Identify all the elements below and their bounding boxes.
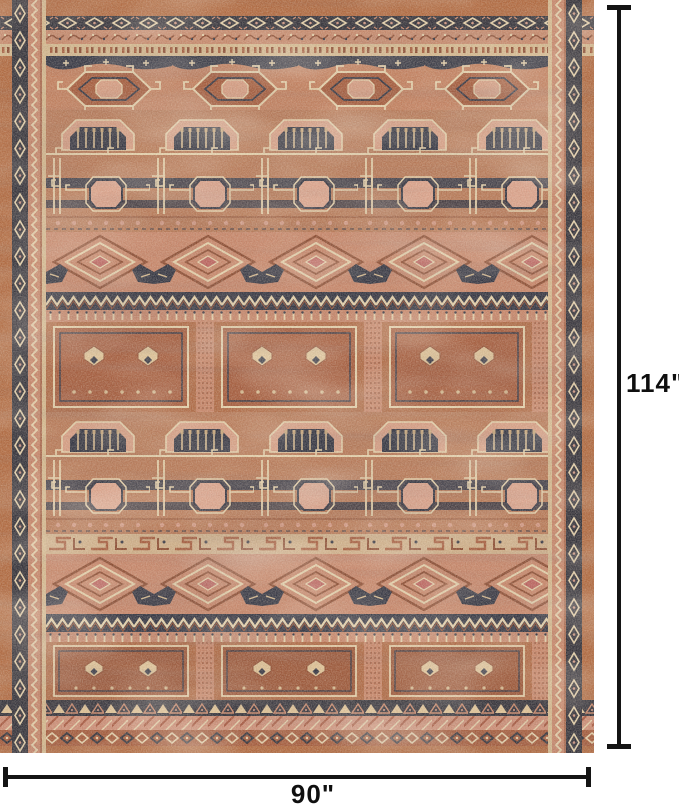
height-dimension-label: 114": [626, 368, 679, 399]
rug-image: [0, 0, 594, 753]
width-dimension-label: 90": [243, 779, 383, 805]
height-dimension-rule: [617, 8, 621, 746]
height-dimension-bottom-cap: [607, 744, 631, 749]
width-dimension-right-cap: [586, 767, 591, 787]
rug-artwork: [0, 0, 594, 753]
product-dimension-image: 114" 90": [0, 0, 679, 805]
